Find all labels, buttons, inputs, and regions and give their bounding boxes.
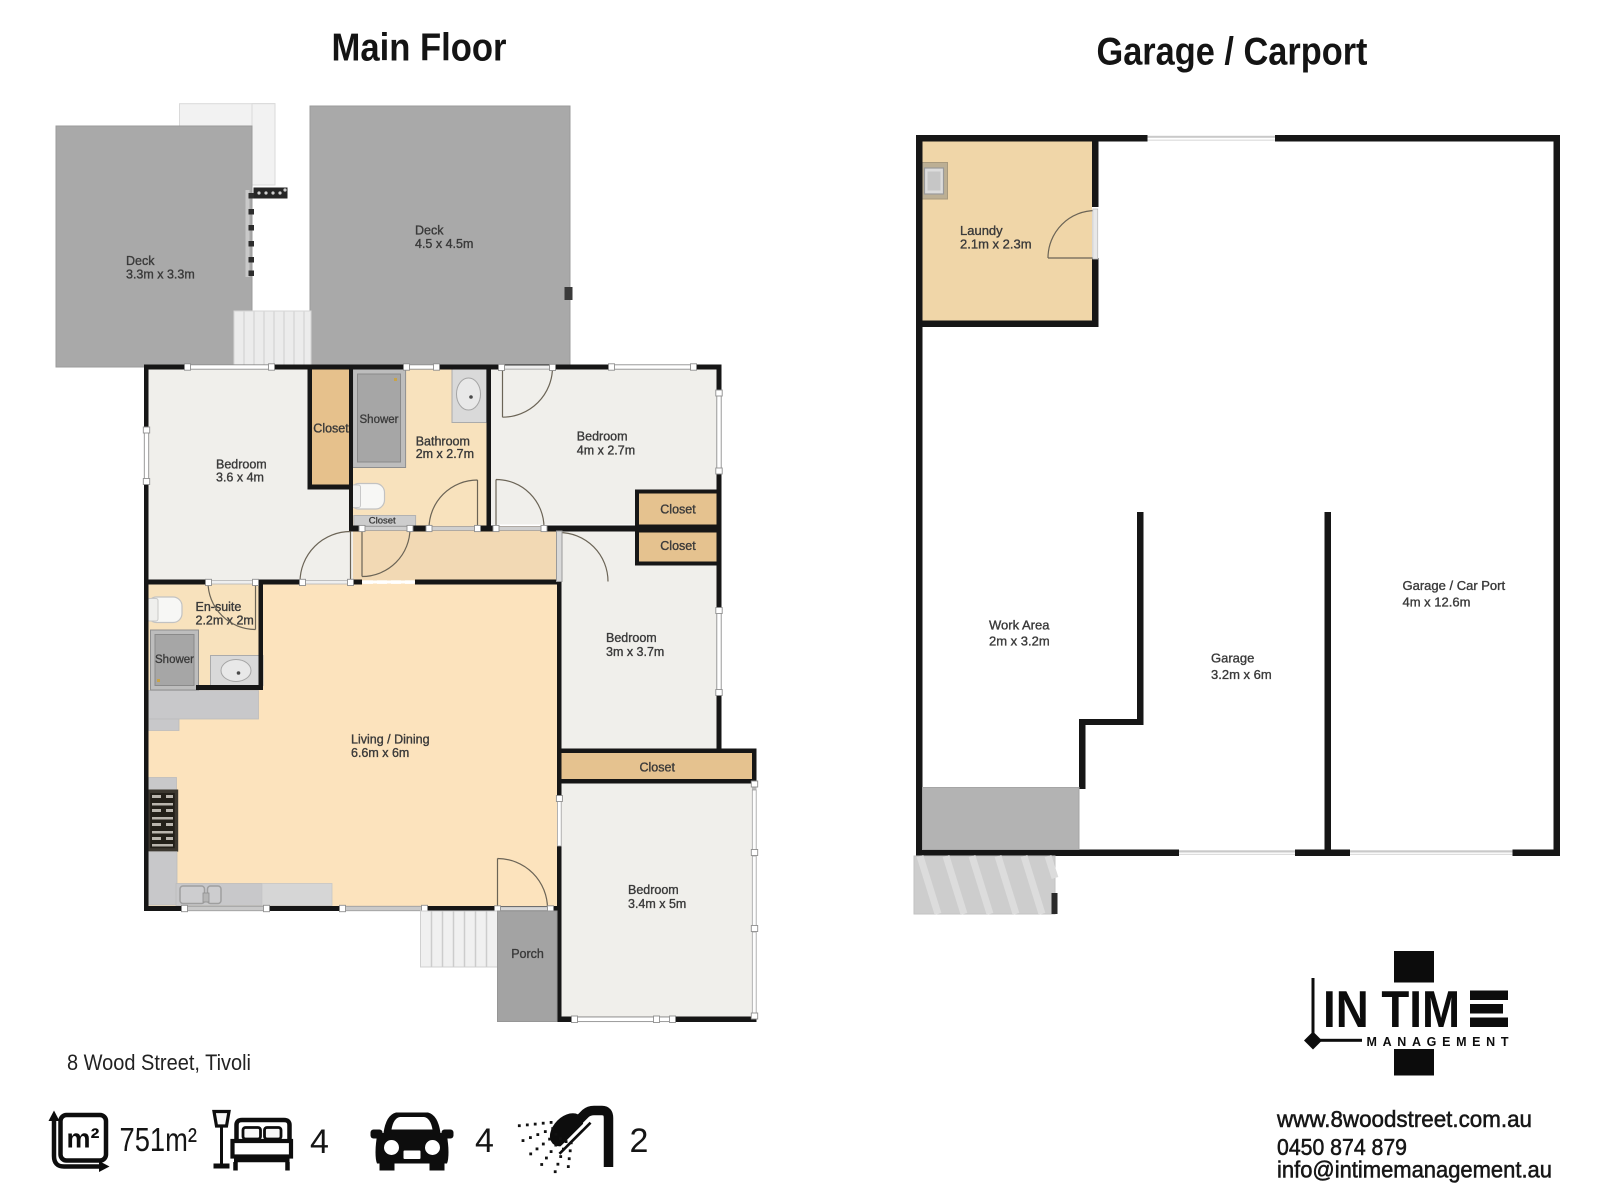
svg-text:Closet: Closet <box>369 516 396 527</box>
svg-text:Main Floor: Main Floor <box>332 27 507 70</box>
svg-text:www.8woodstreet.com.au: www.8woodstreet.com.au <box>1276 1106 1532 1132</box>
svg-text:3.2m x 6m: 3.2m x 6m <box>1211 667 1272 682</box>
svg-text:3.4m x 5m: 3.4m x 5m <box>628 897 686 911</box>
svg-text:Closet: Closet <box>660 539 696 553</box>
svg-text:Closet: Closet <box>660 503 696 517</box>
svg-text:3.3m x 3.3m: 3.3m x 3.3m <box>126 268 195 282</box>
svg-text:Bedroom: Bedroom <box>606 631 657 645</box>
svg-text:Bedroom: Bedroom <box>628 883 679 897</box>
svg-text:3.6 x 4m: 3.6 x 4m <box>216 470 264 484</box>
svg-text:Garage / Car Port: Garage / Car Port <box>1403 578 1506 593</box>
svg-text:6.6m x 6m: 6.6m x 6m <box>351 746 409 760</box>
svg-text:2m x 3.2m: 2m x 3.2m <box>989 634 1050 649</box>
svg-text:2m x 2.7m: 2m x 2.7m <box>416 447 474 461</box>
svg-text:2: 2 <box>630 1122 649 1160</box>
svg-text:8 Wood Street, Tivoli: 8 Wood Street, Tivoli <box>67 1050 251 1075</box>
svg-text:Bedroom: Bedroom <box>577 430 628 444</box>
svg-text:3m x 3.7m: 3m x 3.7m <box>606 645 664 659</box>
svg-text:4m x 2.7m: 4m x 2.7m <box>577 443 635 457</box>
svg-text:2.2m x 2m: 2.2m x 2m <box>196 614 254 628</box>
svg-text:Garage: Garage <box>1211 651 1254 666</box>
svg-text:751m²: 751m² <box>120 1121 198 1158</box>
svg-text:Living / Dining: Living / Dining <box>351 733 430 747</box>
svg-text:Deck: Deck <box>415 224 444 238</box>
svg-text:Work Area: Work Area <box>989 618 1050 633</box>
svg-text:2.1m x 2.3m: 2.1m x 2.3m <box>960 237 1032 252</box>
svg-text:4: 4 <box>310 1123 329 1161</box>
svg-text:Closet: Closet <box>640 761 676 775</box>
svg-text:info@intimemanagement.au: info@intimemanagement.au <box>1277 1157 1552 1183</box>
svg-text:4: 4 <box>475 1122 494 1160</box>
svg-text:4.5 x 4.5m: 4.5 x 4.5m <box>415 237 473 251</box>
svg-text:m²: m² <box>67 1124 100 1154</box>
svg-text:Garage / Carport: Garage / Carport <box>1097 31 1368 74</box>
svg-text:IN TIM: IN TIM <box>1323 981 1460 1039</box>
svg-text:Shower: Shower <box>155 654 194 666</box>
svg-text:Shower: Shower <box>360 414 399 426</box>
svg-text:Porch: Porch <box>511 947 544 961</box>
svg-text:Deck: Deck <box>126 254 155 268</box>
svg-text:4m x 12.6m: 4m x 12.6m <box>1403 595 1471 610</box>
svg-text:Closet: Closet <box>313 422 349 436</box>
